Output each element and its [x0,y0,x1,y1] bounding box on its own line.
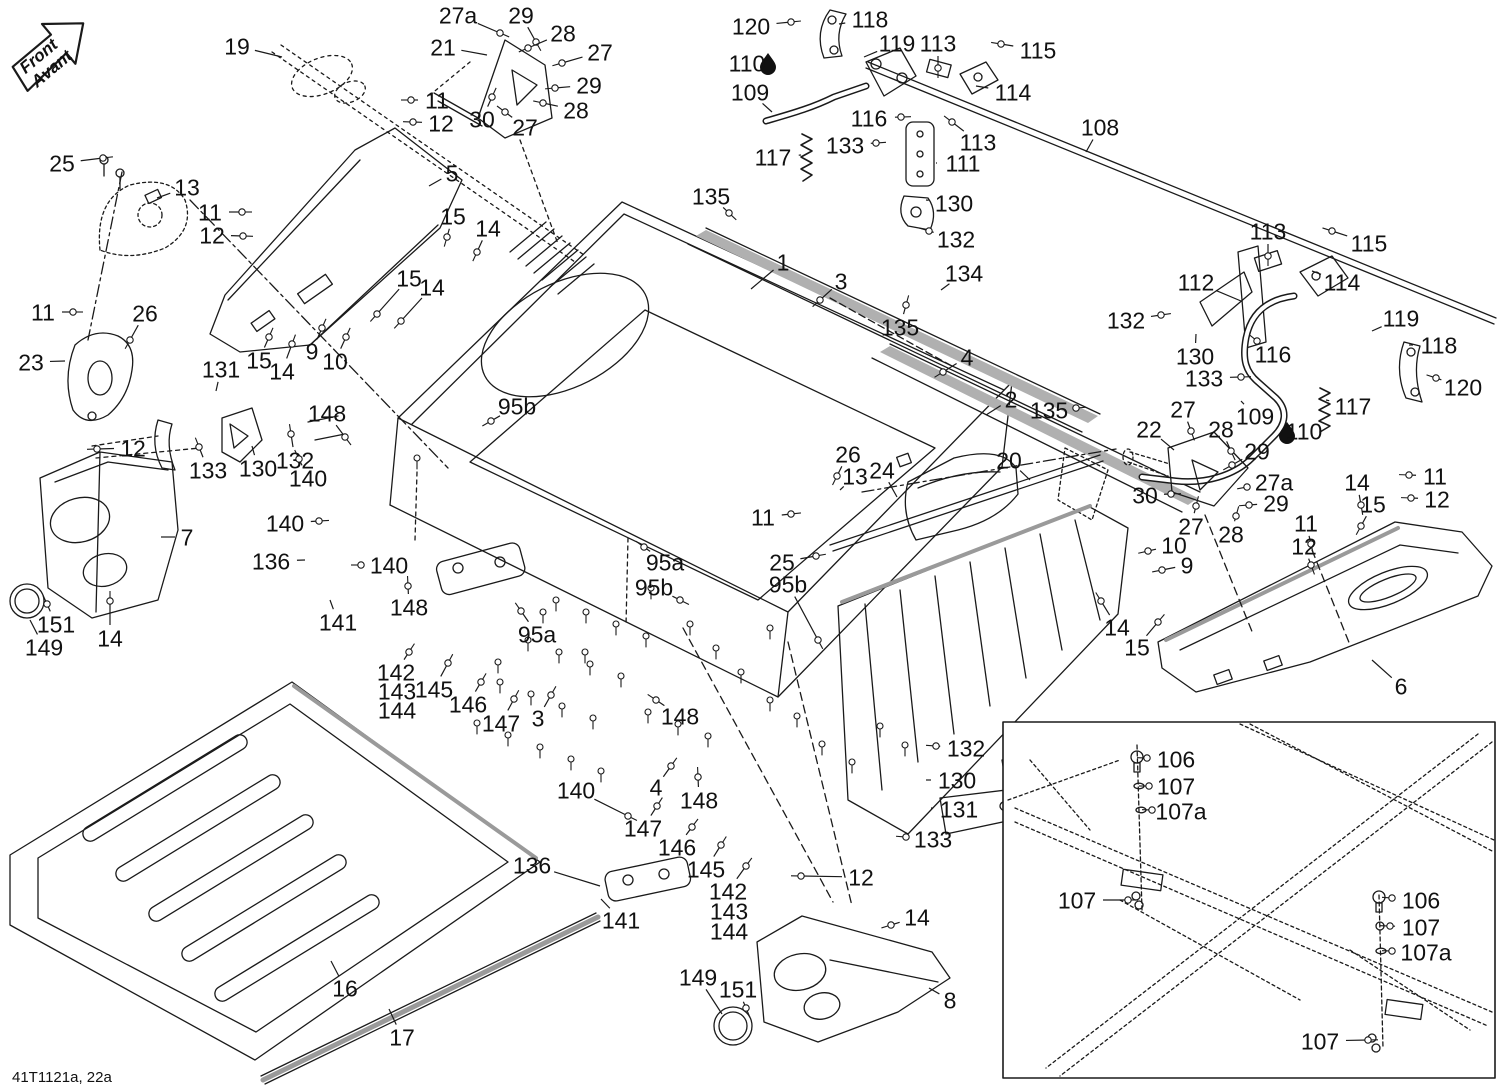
callout-116-34: 116 [1249,335,1291,368]
callout-22-40: 22 [1136,416,1174,450]
callout-21-4: 21 [430,34,487,60]
floor-bolt [497,679,503,693]
callout-120-36: 120 [1427,374,1483,400]
part-number-119: 119 [879,30,916,56]
part-number-24: 24 [869,457,895,483]
part-number-147: 147 [482,710,520,736]
callout-116-20: 116 [851,105,911,131]
front-direction-arrow: Front Avant [1,3,100,98]
part-number-145: 145 [415,676,453,702]
floor-bolt [590,715,596,729]
part-number-29: 29 [1263,490,1289,516]
part-number-7: 7 [181,524,194,550]
callout-29-6: 29 [545,72,602,98]
part-number-115: 115 [1020,37,1057,63]
callout-118-13: 118 [839,6,888,32]
callout-133-137: 133 [896,826,952,852]
part-number-136: 136 [513,852,551,878]
part-number-95b: 95b [635,574,673,600]
callout-14-91: 14 [97,591,123,651]
part-number-140: 140 [266,510,304,536]
part-number-14: 14 [97,625,123,651]
part-number-132: 132 [937,226,975,252]
part-number-17: 17 [389,1024,415,1050]
callout-27-9: 27 [497,106,538,140]
exploded-parts-diagram: Front Avant [0,0,1500,1091]
part-number-3: 3 [835,268,848,294]
part-number-130: 130 [938,767,976,793]
part-number-141: 141 [602,907,640,933]
part-number-110: 110 [1286,418,1323,444]
part-number-133: 133 [826,132,864,158]
part-number-109: 109 [1236,403,1274,429]
part-number-131: 131 [940,796,978,822]
callout-140-84: 140 [266,510,329,536]
part-number-149: 149 [679,964,717,990]
part-number-30: 30 [1132,482,1158,508]
part-number-14: 14 [475,215,501,241]
callout-113-15: 113 [920,30,957,78]
part-number-140: 140 [289,465,327,491]
part-number-116: 116 [851,105,888,131]
callout-144-130: 144 [710,918,749,944]
callout-135-101: 135 [1030,397,1086,423]
callout-4-121: 4 [650,758,677,800]
part-number-117: 117 [755,144,792,170]
callout-10-75: 10 [322,328,350,374]
callout-12-63: 12 [199,222,253,248]
callout-14-66: 14 [473,215,501,261]
part-number-113: 113 [1250,218,1287,244]
part-number-112: 112 [1178,269,1215,295]
part-number-21: 21 [430,34,456,60]
part-number-120: 120 [732,13,770,39]
callout-95b-111: 95b [769,571,823,649]
part-number-116: 116 [1255,341,1292,367]
part-number-3: 3 [532,705,545,731]
part-number-22: 22 [1136,416,1162,442]
part-number-118: 118 [852,6,889,32]
floor-bolt [414,455,420,469]
part-number-30: 30 [469,106,495,132]
part-number-147: 147 [624,815,662,841]
callout-24-106: 24 [869,457,897,497]
part-cargo-box-main [390,202,1012,697]
part-number-95a: 95a [518,621,557,647]
part-number-114: 114 [995,79,1032,105]
part-corner-panel-7 [40,452,178,618]
part-number-95b: 95b [498,393,536,419]
part-number-141: 141 [319,609,357,635]
callout-136-85: 136 [252,548,305,574]
floor-bolt [582,649,588,663]
callout-108-25: 108 [1081,114,1119,152]
callout-148-77: 148 [308,400,351,445]
part-number-14: 14 [904,904,930,930]
part-number-111: 111 [946,150,981,176]
callout-16-141: 16 [331,961,358,1001]
part-number-27: 27 [1170,396,1196,422]
part-latch-cluster-top-left [99,156,187,256]
part-number-133: 133 [914,826,952,852]
part-number-5: 5 [446,160,459,186]
part-number-118: 118 [1421,332,1458,358]
part-number-9: 9 [1181,552,1194,578]
floor-bolt [587,661,593,675]
floor-bolt [849,759,855,773]
callout-147-123: 147 [624,798,663,842]
part-number-28: 28 [550,20,576,46]
callout-28-48: 28 [1218,506,1244,547]
floor-bolt [568,756,574,770]
part-number-107a: 107a [1400,939,1451,965]
part-number-15: 15 [246,347,272,373]
part-number-95a: 95a [646,549,685,575]
floor-bolt [902,742,908,756]
callout-146-124: 146 [658,819,698,860]
part-number-15: 15 [440,203,466,229]
floor-bolt [738,669,744,683]
part-number-148: 148 [390,594,428,620]
part-number-12: 12 [120,435,146,461]
part-number-4: 4 [650,774,663,800]
part-number-136: 136 [252,548,290,574]
callout-119-31: 119 [1372,305,1419,331]
callout-130-135: 130 [926,767,976,793]
callout-95a-112: 95a [515,603,556,647]
floor-bolt [613,621,619,635]
part-number-106: 106 [1157,746,1195,772]
callout-111-23: 111 [936,150,980,176]
part-number-2: 2 [1005,386,1018,412]
part-number-27: 27 [512,114,538,140]
part-number-4: 4 [961,344,974,370]
callout-95b-110: 95b [635,574,689,604]
floor-bolt [598,768,604,782]
part-plug-151-right [714,1007,752,1045]
callout-151-89: 151 [37,595,75,637]
callout-119-14: 119 [864,30,915,57]
part-number-14: 14 [269,358,295,384]
callout-131-136: 131 [931,796,978,822]
callout-110-39: 110 [1286,418,1323,444]
part-number-131: 131 [202,356,240,382]
floor-bolt [559,703,565,717]
callout-28-7: 28 [533,97,589,123]
callout-110-17: 110 [729,50,766,76]
callout-109-18: 109 [731,79,772,112]
callout-148-120: 148 [648,694,700,729]
part-number-28: 28 [1208,416,1234,442]
part-number-151: 151 [719,976,757,1002]
part-number-12: 12 [428,110,454,136]
part-linkage-right [1123,246,1422,506]
floor-bolt [556,649,562,663]
part-number-106: 106 [1402,887,1440,913]
part-number-28: 28 [563,97,589,123]
callout-14-132: 14 [881,904,930,930]
part-number-108: 108 [1081,114,1119,140]
part-number-115: 115 [1351,230,1388,256]
callout-26-70: 26 [125,300,158,348]
callout-23-71: 23 [18,349,65,375]
callout-117-24: 117 [755,144,801,170]
part-number-15: 15 [396,265,422,291]
part-box-cover-16 [10,682,540,1060]
part-number-144: 144 [378,697,417,723]
part-number-28: 28 [1218,521,1244,547]
part-number-29: 29 [1244,438,1270,464]
part-corner-panel-8 [757,916,950,1042]
callout-12-11: 12 [403,110,454,136]
callout-115-16: 115 [991,37,1056,63]
part-number-6: 6 [1395,673,1408,699]
part-number-95b: 95b [769,571,807,597]
part-number-132: 132 [947,735,985,761]
callout-11-69: 11 [31,299,83,325]
part-number-133: 133 [189,457,227,483]
callout-141-127: 141 [601,899,640,933]
callout-6-59: 6 [1372,660,1407,699]
callout-148-133: 148 [680,767,718,813]
part-number-107: 107 [1058,887,1096,913]
callout-141-87: 141 [319,600,357,635]
part-number-133: 133 [1185,365,1223,391]
callout-15-58: 15 [1124,614,1164,660]
floor-bolt [767,697,773,711]
part-number-29: 29 [576,72,602,98]
part-number-135: 135 [692,183,730,209]
part-number-140: 140 [370,552,408,578]
part-number-19: 19 [224,33,250,59]
part-number-135: 135 [881,314,919,340]
callout-132-134: 132 [926,735,985,761]
callout-30-8: 30 [469,88,496,132]
part-number-130: 130 [239,455,277,481]
part-number-134: 134 [945,260,984,286]
part-number-12: 12 [1291,533,1317,559]
part-number-12: 12 [1424,486,1450,512]
floor-bolt [705,733,711,747]
part-number-11: 11 [31,299,55,325]
callout-130-79: 130 [239,446,277,481]
callout-95a-108: 95a [636,541,685,575]
callout-135-92: 135 [692,183,736,220]
callout-117-38: 117 [1326,393,1371,419]
part-number-1: 1 [777,249,790,275]
part-number-107a: 107a [1155,798,1206,824]
callout-151-139: 151 [719,976,757,1017]
callout-115-27: 115 [1322,228,1387,256]
floor-bolt [583,609,589,623]
floor-bolt [537,744,543,758]
part-number-130: 130 [935,190,973,216]
floor-bolt [528,691,534,705]
part-number-140: 140 [557,777,595,803]
callout-15-65: 15 [440,203,466,246]
callout-130-33: 130 [1176,334,1214,369]
floor-bolt [767,625,773,639]
part-number-25: 25 [49,150,75,176]
part-number-109: 109 [731,79,769,105]
part-number-107: 107 [1301,1028,1339,1054]
part-latch-23 [68,333,133,420]
callout-14-73: 14 [269,335,295,385]
callout-95b-103: 95b [482,393,536,426]
callout-114-19: 114 [976,79,1032,105]
floor-bolt [687,621,693,635]
part-number-29: 29 [508,2,534,28]
part-number-107: 107 [1157,773,1195,799]
callout-28-42: 28 [1208,416,1235,460]
callout-27-41: 27 [1170,396,1196,440]
part-number-117: 117 [1335,393,1372,419]
callout-133-35: 133 [1185,365,1251,391]
callout-13-61: 13 [157,174,200,200]
part-number-9: 9 [306,338,319,364]
part-number-13: 13 [174,174,200,200]
callout-149-138: 149 [679,964,722,1014]
part-number-107: 107 [1402,914,1440,940]
callout-11-107: 11 [751,504,801,530]
callout-10-55: 10 [1138,532,1187,558]
floor-bolt [553,597,559,611]
callout-27a-1: 27a [439,2,509,37]
part-number-119: 119 [1383,305,1420,331]
callout-133-21: 133 [826,132,886,158]
callout-14-57: 14 [1096,592,1130,640]
floor-bolt [645,709,651,723]
callout-132-30: 132 [1107,307,1171,333]
part-number-148: 148 [661,703,699,729]
callout-20-102: 20 [996,447,1030,480]
part-number-16: 16 [332,975,358,1001]
callout-135-98: 135 [881,295,919,340]
callout-132-96: 132 [919,226,975,252]
part-number-11: 11 [751,504,775,530]
part-number-114: 114 [1324,269,1361,295]
callout-109-37: 109 [1236,401,1274,429]
floor-bolt [819,741,825,755]
callout-140-122: 140 [557,777,637,820]
part-number-23: 23 [18,349,44,375]
callout-131-76: 131 [202,356,240,391]
part-number-8: 8 [944,987,957,1013]
floor-bolt [618,673,624,687]
part-number-14: 14 [419,274,445,300]
part-number-12: 12 [199,222,225,248]
part-number-132: 132 [1107,307,1145,333]
callout-29-2: 29 [508,2,541,50]
part-front-panel-5 [210,128,462,352]
part-number-149: 149 [25,634,63,660]
callout-29-46: 29 [1239,490,1289,516]
part-number-113: 113 [920,30,957,56]
part-side-panel-6 [1158,522,1492,692]
part-number-15: 15 [1124,634,1150,660]
part-number-144: 144 [710,918,749,944]
callout-148-88: 148 [390,576,428,620]
floor-bolt [713,645,719,659]
part-number-20: 20 [996,447,1022,473]
part-number-148: 148 [308,400,346,426]
part-hinge-136-bottom [604,856,692,903]
callout-145-116: 145 [415,654,453,702]
callout-12-131: 12 [791,864,874,890]
callout-114-29: 114 [1312,269,1361,295]
callout-8-140: 8 [929,987,956,1013]
part-number-27a: 27a [439,2,478,28]
callout-120-12: 120 [732,13,801,39]
callout-3-119: 3 [532,686,556,731]
callout-136-126: 136 [513,852,600,886]
floor-bolt [877,723,883,737]
floor-bolt [495,659,501,673]
callout-12-52: 12 [1401,486,1450,512]
part-number-110: 110 [729,50,766,76]
callout-15-67: 15 [370,265,421,321]
part-number-13: 13 [842,463,868,489]
parts-diagram-page: Front Avant [0,0,1500,1091]
drawing-code: 41T1121a, 22a [12,1069,112,1086]
callout-147-118: 147 [482,690,520,736]
part-number-27: 27 [587,39,613,65]
callout-140-86: 140 [351,552,408,578]
floor-bolt [643,633,649,647]
callout-13-105: 13 [840,463,868,490]
floor-bolt [794,713,800,727]
callout-144-115: 144 [378,697,417,723]
part-number-120: 120 [1444,374,1482,400]
part-number-26: 26 [132,300,158,326]
part-number-135: 135 [1030,397,1068,423]
part-number-12: 12 [848,864,874,890]
part-number-15: 15 [1360,491,1386,517]
part-number-10: 10 [322,348,348,374]
floor-bolt [474,720,480,734]
callout-19-0: 19 [224,33,282,59]
callout-134-97: 134 [941,260,983,290]
part-number-148: 148 [680,787,718,813]
